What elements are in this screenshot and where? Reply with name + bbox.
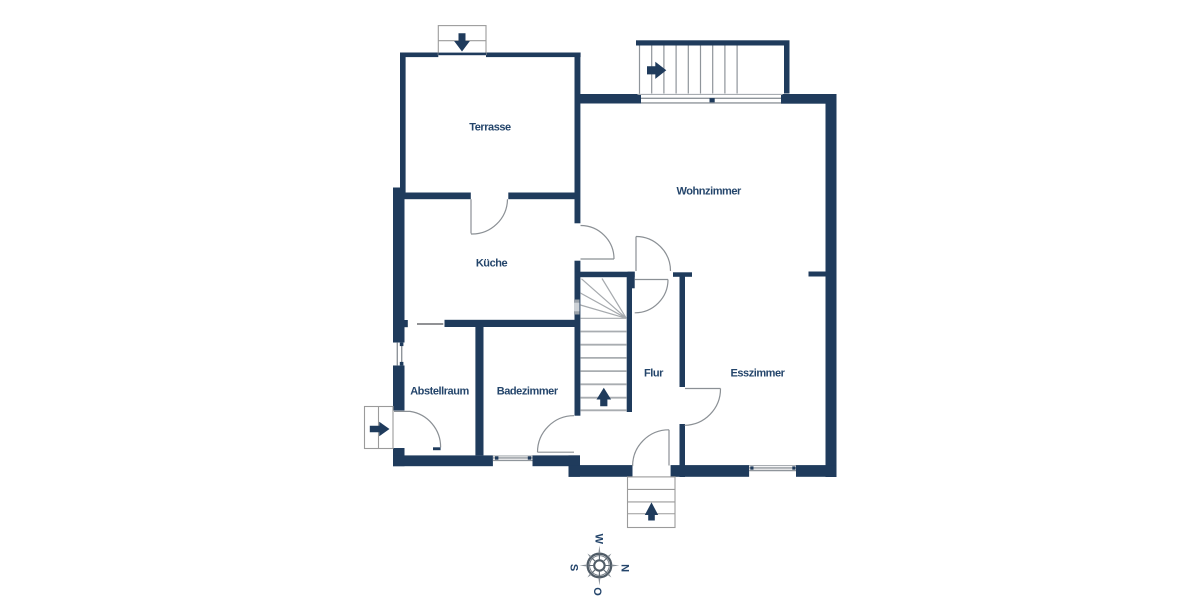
svg-text:Flur: Flur <box>644 367 664 379</box>
svg-text:Esszimmer: Esszimmer <box>730 367 785 379</box>
svg-text:N: N <box>619 564 631 572</box>
svg-text:W: W <box>592 534 604 545</box>
svg-text:Terrasse: Terrasse <box>469 122 511 134</box>
svg-text:Küche: Küche <box>476 257 508 269</box>
svg-text:Badezimmer: Badezimmer <box>497 385 559 397</box>
svg-text:S: S <box>567 564 579 571</box>
svg-text:Abstellraum: Abstellraum <box>410 385 469 397</box>
svg-text:O: O <box>591 587 603 596</box>
svg-text:Wohnzimmer: Wohnzimmer <box>677 186 743 198</box>
